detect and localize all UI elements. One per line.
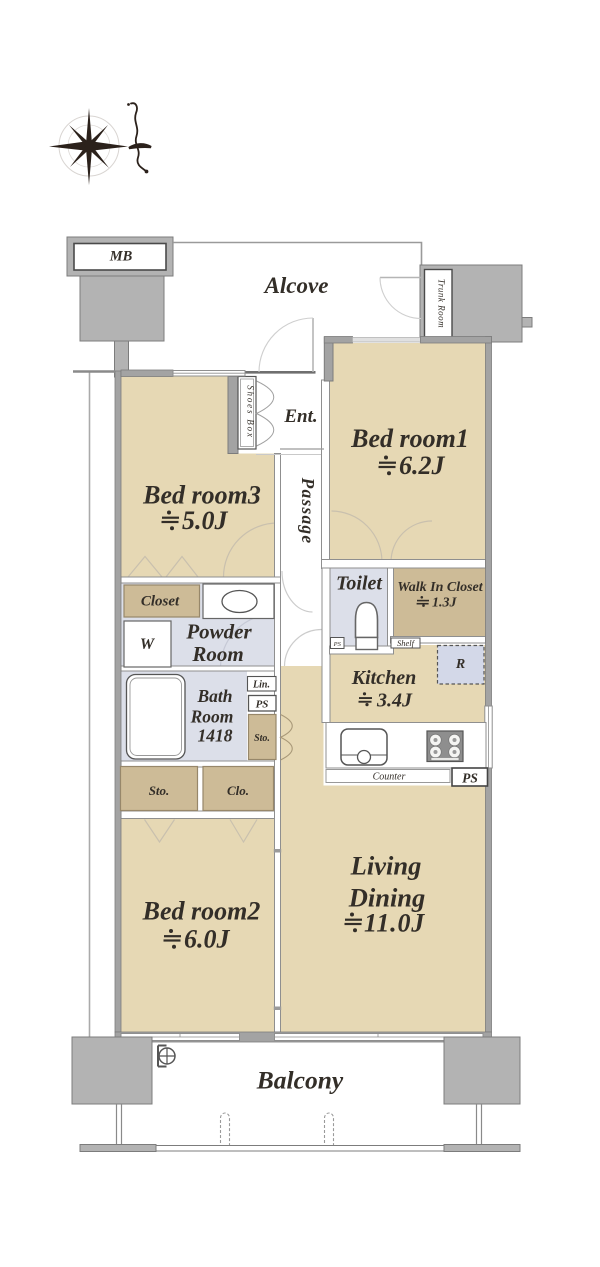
svg-text:Bed room1: Bed room1 xyxy=(350,424,469,453)
svg-text:Kitchen: Kitchen xyxy=(351,667,416,689)
svg-text:Walk In Closet: Walk In Closet xyxy=(397,580,483,595)
svg-text:Bath: Bath xyxy=(196,686,232,706)
svg-text:Lin.: Lin. xyxy=(252,680,270,691)
svg-text:PS: PS xyxy=(256,699,269,711)
svg-text:Living: Living xyxy=(350,851,422,881)
svg-text:Passage: Passage xyxy=(298,477,318,545)
svg-text:11.0J: 11.0J xyxy=(364,909,425,938)
svg-text:Shelf: Shelf xyxy=(397,638,416,648)
svg-text:Room: Room xyxy=(191,642,243,666)
svg-text:Closet: Closet xyxy=(141,594,180,610)
svg-text:PS: PS xyxy=(462,771,478,786)
svg-text:Toilet: Toilet xyxy=(336,573,383,595)
svg-text:1.3J: 1.3J xyxy=(432,596,458,611)
svg-text:Shoes Box: Shoes Box xyxy=(245,385,255,438)
svg-text:Sto.: Sto. xyxy=(254,733,270,744)
svg-text:W: W xyxy=(140,636,156,653)
svg-text:3.4J: 3.4J xyxy=(376,690,413,712)
svg-text:Clo.: Clo. xyxy=(227,783,249,798)
svg-text:1418: 1418 xyxy=(198,726,233,746)
svg-text:Powder: Powder xyxy=(185,620,252,644)
svg-text:R: R xyxy=(455,657,465,672)
svg-text:6.2J: 6.2J xyxy=(399,451,446,480)
svg-text:6.0J: 6.0J xyxy=(184,925,231,954)
svg-text:Balcony: Balcony xyxy=(256,1066,344,1095)
svg-text:Sto.: Sto. xyxy=(149,783,170,798)
svg-text:5.0J: 5.0J xyxy=(182,506,229,535)
svg-text:Bed room2: Bed room2 xyxy=(142,897,261,926)
svg-text:Counter: Counter xyxy=(373,772,406,783)
svg-text:MB: MB xyxy=(109,249,133,265)
svg-text:PS: PS xyxy=(333,641,342,648)
svg-text:Ent.: Ent. xyxy=(283,406,317,427)
svg-text:Alcove: Alcove xyxy=(263,273,329,298)
svg-text:Room: Room xyxy=(190,707,234,727)
svg-text:Trunk Room: Trunk Room xyxy=(437,279,447,328)
